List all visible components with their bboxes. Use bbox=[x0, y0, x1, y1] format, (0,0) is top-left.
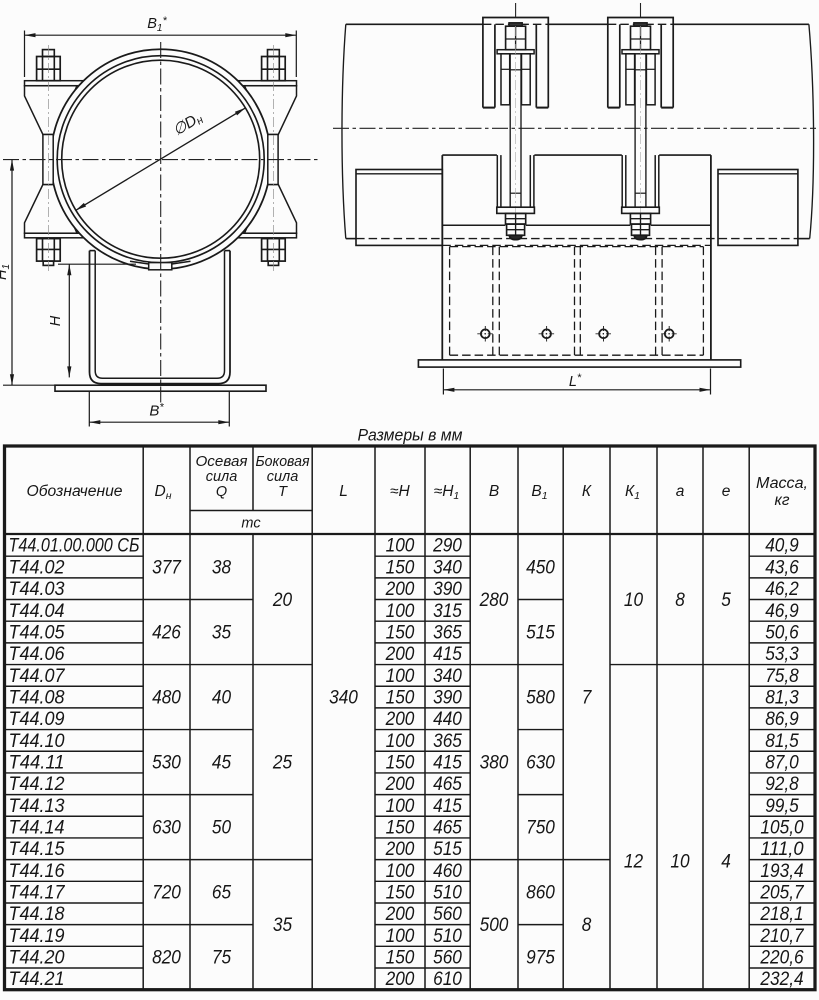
svg-text:630: 630 bbox=[152, 818, 181, 839]
svg-text:Масса,: Масса, bbox=[756, 475, 808, 492]
svg-text:Т44.04: Т44.04 bbox=[9, 601, 65, 622]
svg-text:426: 426 bbox=[152, 622, 181, 643]
svg-text:50: 50 bbox=[212, 818, 232, 839]
svg-text:150: 150 bbox=[386, 687, 415, 708]
svg-text:460: 460 bbox=[433, 861, 462, 882]
svg-text:L: L bbox=[339, 483, 348, 500]
svg-text:Т44.02: Т44.02 bbox=[9, 557, 65, 578]
svg-text:Т44.15: Т44.15 bbox=[9, 839, 65, 860]
svg-text:340: 340 bbox=[433, 557, 462, 578]
svg-text:Т44.17: Т44.17 bbox=[9, 883, 66, 904]
svg-text:200: 200 bbox=[385, 904, 415, 925]
svg-text:105,0: 105,0 bbox=[760, 818, 804, 839]
svg-text:Боковая: Боковая bbox=[256, 454, 310, 470]
svg-text:390: 390 bbox=[433, 579, 462, 600]
svg-text:10: 10 bbox=[670, 851, 690, 872]
svg-text:480: 480 bbox=[152, 687, 181, 708]
svg-text:8: 8 bbox=[582, 915, 592, 936]
svg-text:Т44.08: Т44.08 bbox=[9, 687, 65, 708]
svg-text:150: 150 bbox=[386, 752, 415, 773]
svg-text:200: 200 bbox=[385, 644, 415, 665]
svg-text:100: 100 bbox=[386, 861, 415, 882]
svg-text:10: 10 bbox=[624, 590, 644, 611]
svg-text:Т44.19: Т44.19 bbox=[9, 926, 65, 947]
svg-text:Обозначение: Обозначение bbox=[27, 483, 123, 500]
svg-text:50,6: 50,6 bbox=[765, 622, 799, 643]
svg-text:65: 65 bbox=[212, 883, 232, 904]
svg-text:100: 100 bbox=[386, 926, 415, 947]
svg-text:Т44.20: Т44.20 bbox=[9, 948, 65, 969]
svg-text:43,6: 43,6 bbox=[765, 557, 799, 578]
svg-text:975: 975 bbox=[526, 948, 555, 969]
svg-text:465: 465 bbox=[433, 818, 462, 839]
svg-text:Т: Т bbox=[278, 484, 288, 500]
svg-text:Осевая: Осевая bbox=[196, 454, 248, 470]
svg-text:40: 40 bbox=[212, 687, 232, 708]
svg-text:111,0: 111,0 bbox=[760, 839, 804, 860]
svg-text:81,3: 81,3 bbox=[765, 687, 799, 708]
svg-text:290: 290 bbox=[432, 536, 462, 557]
svg-text:560: 560 bbox=[433, 948, 462, 969]
svg-text:46,9: 46,9 bbox=[765, 601, 799, 622]
svg-text:Размеры в мм: Размеры в мм bbox=[358, 426, 463, 445]
svg-text:100: 100 bbox=[386, 666, 415, 687]
svg-text:560: 560 bbox=[433, 904, 462, 925]
svg-text:150: 150 bbox=[386, 557, 415, 578]
svg-text:75,8: 75,8 bbox=[765, 666, 799, 687]
svg-text:Т44.06: Т44.06 bbox=[9, 644, 65, 665]
svg-text:280: 280 bbox=[479, 590, 509, 611]
svg-text:Т44.18: Т44.18 bbox=[9, 904, 65, 925]
svg-text:100: 100 bbox=[386, 601, 415, 622]
svg-text:Т44.09: Т44.09 bbox=[9, 709, 65, 730]
svg-text:100: 100 bbox=[386, 536, 415, 557]
svg-text:92,8: 92,8 bbox=[765, 774, 799, 795]
svg-text:Т44.11: Т44.11 bbox=[9, 752, 65, 773]
svg-text:220,6: 220,6 bbox=[759, 948, 804, 969]
svg-text:750: 750 bbox=[526, 818, 555, 839]
svg-text:53,3: 53,3 bbox=[765, 644, 799, 665]
svg-text:100: 100 bbox=[386, 796, 415, 817]
svg-text:8: 8 bbox=[675, 590, 685, 611]
svg-text:4: 4 bbox=[721, 851, 731, 872]
svg-text:465: 465 bbox=[433, 774, 462, 795]
svg-text:Q: Q bbox=[216, 484, 227, 500]
svg-text:340: 340 bbox=[433, 666, 462, 687]
svg-text:25: 25 bbox=[272, 752, 292, 773]
svg-text:кг: кг bbox=[775, 492, 790, 509]
svg-text:150: 150 bbox=[386, 948, 415, 969]
svg-text:75: 75 bbox=[212, 948, 232, 969]
svg-text:515: 515 bbox=[526, 622, 555, 643]
svg-text:500: 500 bbox=[480, 915, 509, 936]
svg-text:150: 150 bbox=[386, 622, 415, 643]
svg-text:45: 45 bbox=[212, 752, 232, 773]
svg-text:38: 38 bbox=[212, 557, 232, 578]
svg-text:100: 100 bbox=[386, 731, 415, 752]
svg-text:35: 35 bbox=[212, 622, 232, 643]
svg-text:210,7: 210,7 bbox=[759, 926, 804, 947]
svg-text:380: 380 bbox=[480, 752, 509, 773]
svg-text:315: 315 bbox=[433, 601, 462, 622]
svg-text:Т44.07: Т44.07 bbox=[9, 666, 66, 687]
svg-text:150: 150 bbox=[386, 883, 415, 904]
svg-text:610: 610 bbox=[433, 969, 462, 990]
svg-text:340: 340 bbox=[329, 687, 358, 708]
svg-text:205,7: 205,7 bbox=[759, 883, 804, 904]
svg-text:В: В bbox=[489, 483, 499, 500]
svg-text:377: 377 bbox=[152, 557, 182, 578]
svg-text:415: 415 bbox=[433, 752, 462, 773]
svg-text:5: 5 bbox=[721, 590, 731, 611]
svg-text:415: 415 bbox=[433, 796, 462, 817]
svg-text:200: 200 bbox=[385, 969, 415, 990]
svg-text:12: 12 bbox=[624, 851, 644, 872]
svg-text:е: е bbox=[722, 483, 731, 500]
svg-text:510: 510 bbox=[433, 926, 462, 947]
svg-text:200: 200 bbox=[385, 709, 415, 730]
svg-text:35: 35 bbox=[273, 915, 293, 936]
svg-text:99,5: 99,5 bbox=[765, 796, 799, 817]
svg-text:87,0: 87,0 bbox=[765, 752, 799, 773]
svg-text:86,9: 86,9 bbox=[765, 709, 799, 730]
svg-text:365: 365 bbox=[433, 731, 462, 752]
svg-text:200: 200 bbox=[385, 579, 415, 600]
svg-text:515: 515 bbox=[433, 839, 462, 860]
svg-text:7: 7 bbox=[582, 687, 593, 708]
svg-text:200: 200 bbox=[385, 774, 415, 795]
svg-text:390: 390 bbox=[433, 687, 462, 708]
svg-text:Т44.16: Т44.16 bbox=[9, 861, 65, 882]
svg-text:40,9: 40,9 bbox=[765, 536, 799, 557]
svg-text:К: К bbox=[582, 483, 592, 500]
svg-text:200: 200 bbox=[385, 839, 415, 860]
svg-text:150: 150 bbox=[386, 818, 415, 839]
svg-text:365: 365 bbox=[433, 622, 462, 643]
svg-text:820: 820 bbox=[152, 948, 181, 969]
svg-text:46,2: 46,2 bbox=[765, 579, 799, 600]
svg-text:81,5: 81,5 bbox=[765, 731, 799, 752]
svg-text:Т44.01.00.000 СБ: Т44.01.00.000 СБ bbox=[9, 536, 140, 557]
svg-text:720: 720 bbox=[152, 883, 181, 904]
svg-text:530: 530 bbox=[152, 752, 181, 773]
svg-text:510: 510 bbox=[433, 883, 462, 904]
svg-text:Т44.14: Т44.14 bbox=[9, 818, 65, 839]
svg-text:440: 440 bbox=[433, 709, 462, 730]
svg-text:сила: сила bbox=[206, 469, 238, 485]
svg-text:Т44.21: Т44.21 bbox=[9, 969, 65, 990]
svg-text:193,4: 193,4 bbox=[760, 861, 803, 882]
svg-text:630: 630 bbox=[526, 752, 555, 773]
svg-text:Т44.13: Т44.13 bbox=[9, 796, 65, 817]
svg-text:415: 415 bbox=[433, 644, 462, 665]
svg-text:20: 20 bbox=[272, 590, 292, 611]
svg-text:а: а bbox=[676, 483, 685, 500]
svg-text:Н: Н bbox=[48, 315, 64, 326]
svg-text:232,4: 232,4 bbox=[759, 969, 803, 990]
svg-text:580: 580 bbox=[526, 687, 555, 708]
svg-text:450: 450 bbox=[526, 557, 555, 578]
svg-text:Т44.12: Т44.12 bbox=[9, 774, 65, 795]
svg-text:тс: тс bbox=[241, 516, 261, 532]
svg-text:Т44.05: Т44.05 bbox=[9, 622, 65, 643]
svg-text:218,1: 218,1 bbox=[759, 904, 803, 925]
svg-text:≈Н: ≈Н bbox=[390, 483, 411, 500]
svg-text:Т44.10: Т44.10 bbox=[9, 731, 65, 752]
svg-text:860: 860 bbox=[526, 883, 555, 904]
svg-text:Т44.03: Т44.03 bbox=[9, 579, 65, 600]
svg-text:сила: сила bbox=[267, 469, 299, 485]
